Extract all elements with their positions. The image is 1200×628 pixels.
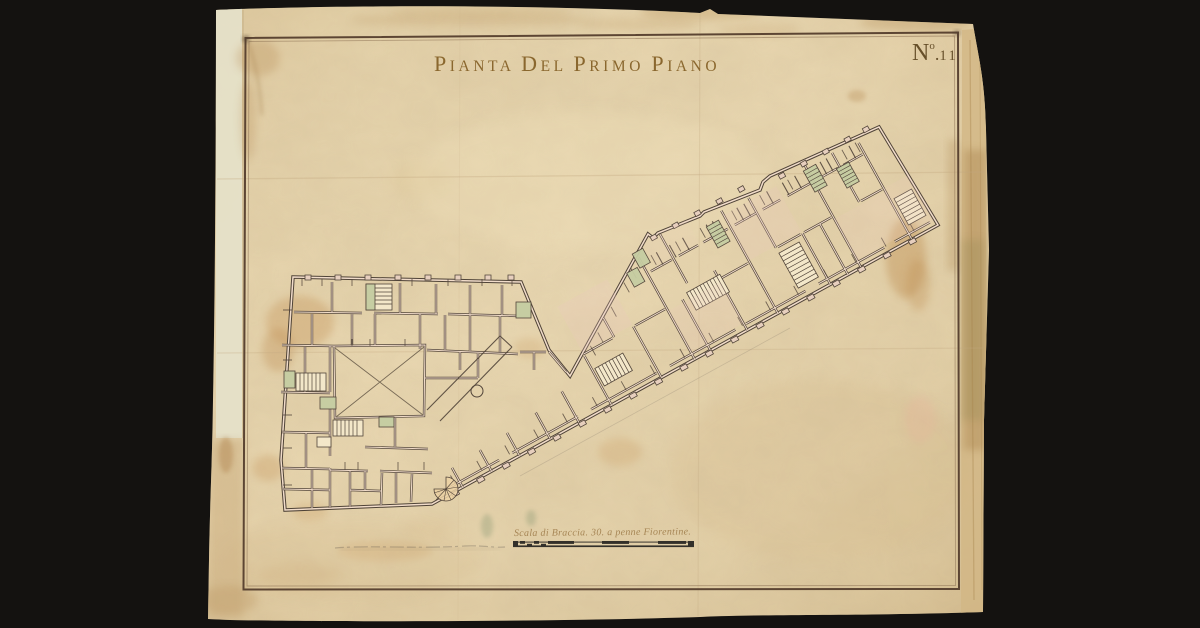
svg-text:Scala di Braccia. 30. a penne: Scala di Braccia. 30. a penne Fiorentine… bbox=[514, 526, 691, 539]
